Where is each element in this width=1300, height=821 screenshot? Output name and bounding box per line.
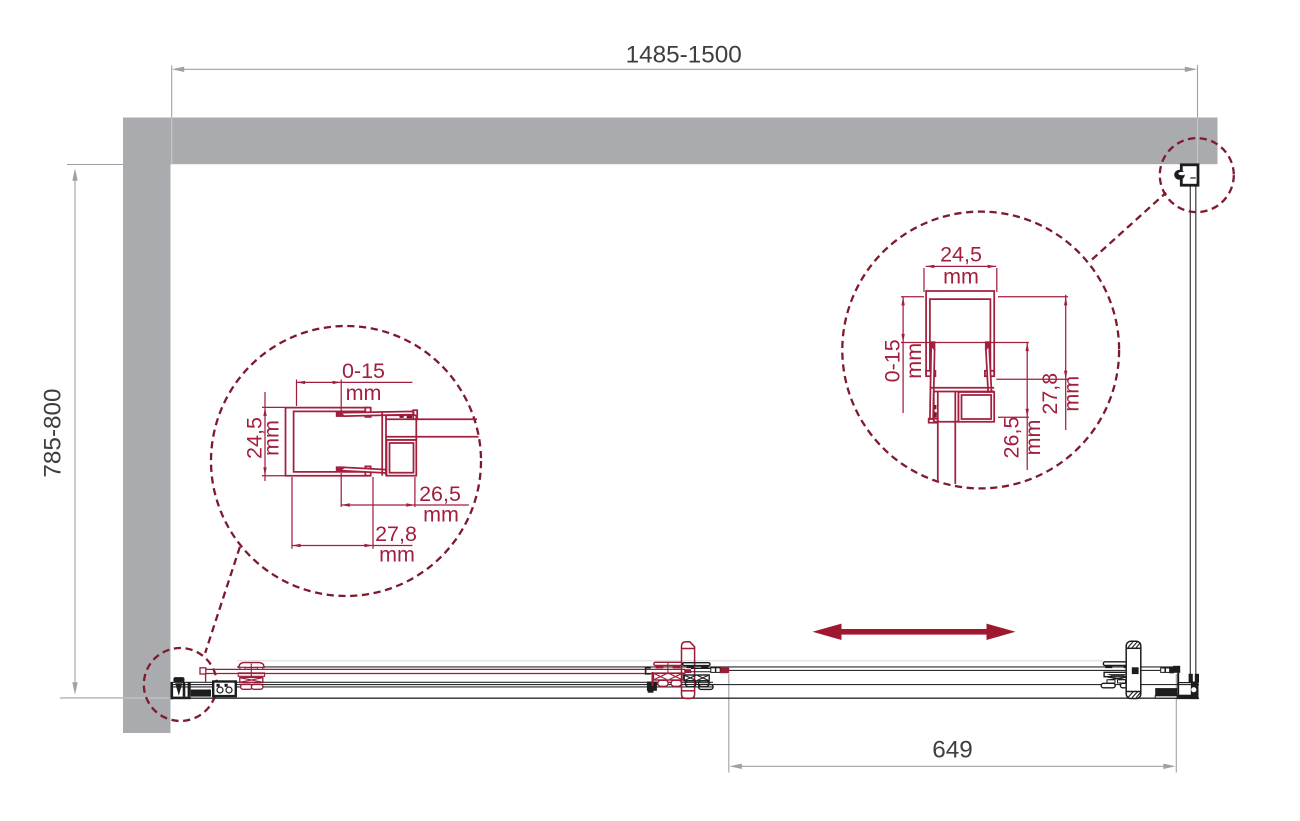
svg-text:mm: mm: [902, 343, 926, 379]
svg-text:mm: mm: [260, 420, 284, 456]
svg-text:785-800: 785-800: [40, 388, 67, 477]
svg-text:0-15: 0-15: [342, 359, 385, 383]
svg-text:mm: mm: [1060, 376, 1084, 412]
svg-text:649: 649: [932, 737, 973, 764]
svg-text:1485-1500: 1485-1500: [626, 42, 742, 69]
svg-text:26,5: 26,5: [1000, 417, 1024, 459]
svg-text:mm: mm: [346, 381, 382, 405]
svg-text:24,5: 24,5: [940, 243, 982, 267]
svg-text:mm: mm: [423, 503, 459, 527]
svg-text:27,8: 27,8: [1038, 373, 1062, 415]
svg-text:mm: mm: [379, 542, 415, 566]
svg-text:mm: mm: [943, 264, 979, 288]
svg-text:mm: mm: [1021, 420, 1045, 456]
svg-text:0-15: 0-15: [881, 339, 905, 382]
